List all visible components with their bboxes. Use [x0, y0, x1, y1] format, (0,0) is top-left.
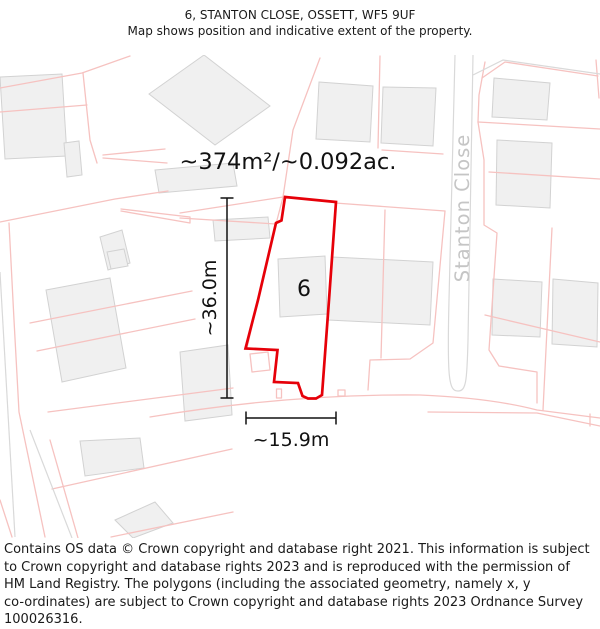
building [552, 279, 598, 347]
land-registry-map-page: { "title": { "line1": "6, STANTON CLOSE,… [0, 0, 600, 625]
building [381, 87, 436, 146]
outbuilding-outline [250, 352, 270, 372]
width-dimension-line [246, 412, 336, 425]
property-map: ~374m²/~0.092ac. 6 ~36.0m ~15.9m Stanton… [0, 55, 600, 538]
road-edge-left [30, 430, 72, 538]
building [492, 78, 550, 120]
footer-text-line: co-ordinates) are subject to Crown copyr… [4, 594, 596, 612]
footer-text-line: Contains OS data © Crown copyright and d… [4, 541, 596, 559]
plot-number-label: 6 [297, 277, 311, 302]
building [316, 82, 373, 142]
building [64, 141, 82, 177]
footer-text-line: to Crown copyright and database rights 2… [4, 559, 596, 577]
road-edge-left [0, 272, 15, 537]
building [328, 257, 433, 325]
footer-text-line: 100026316. [4, 611, 596, 629]
height-dimension-label: ~36.0m [199, 260, 221, 337]
width-dimension-label: ~15.9m [253, 429, 330, 451]
map-subtitle: Map shows position and indicative extent… [0, 23, 600, 39]
street-name-label: Stanton Close [451, 134, 474, 283]
building [115, 502, 173, 538]
outbuilding-outline [338, 390, 345, 396]
road-corner [473, 60, 600, 75]
building [180, 345, 232, 421]
property-address: 6, STANTON CLOSE, OSSETT, WF5 9UF [0, 7, 600, 23]
map-title: 6, STANTON CLOSE, OSSETT, WF5 9UF Map sh… [0, 0, 600, 55]
building [46, 278, 126, 382]
building [492, 279, 542, 337]
footer-text-line: HM Land Registry. The polygons (includin… [4, 576, 596, 594]
area-label: ~374m²/~0.092ac. [180, 149, 397, 175]
building [107, 249, 128, 269]
building [149, 55, 270, 145]
outbuilding-outline [277, 389, 282, 398]
copyright-footer: Contains OS data © Crown copyright and d… [0, 538, 600, 629]
